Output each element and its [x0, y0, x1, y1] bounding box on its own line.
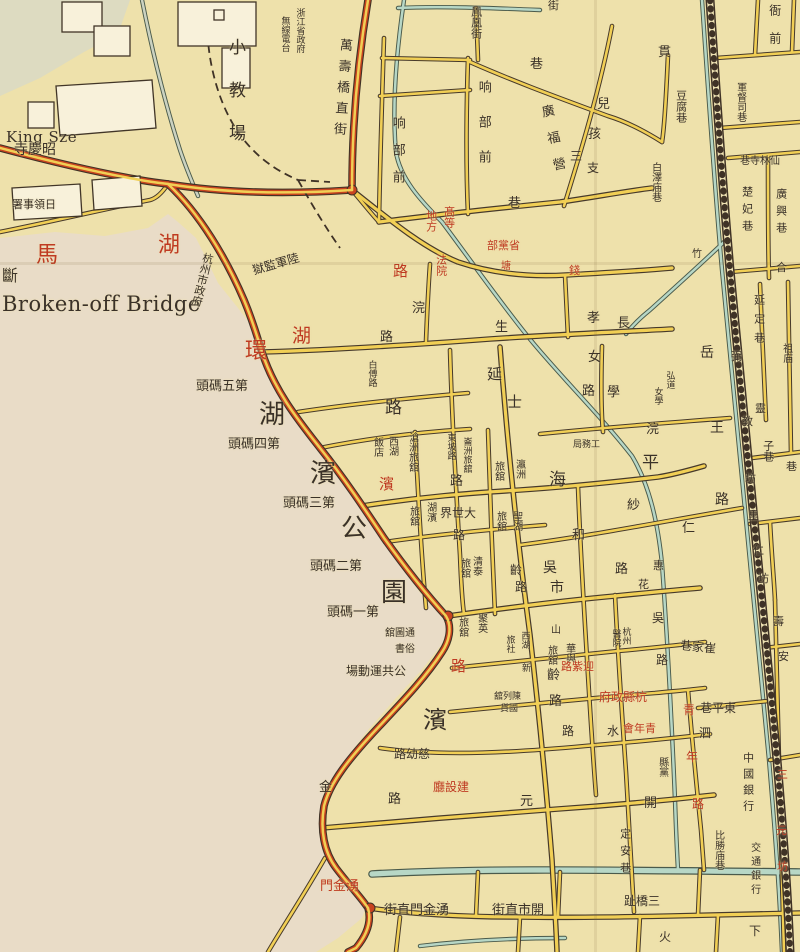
map-label: 王 [710, 421, 724, 436]
map-label: 下 [749, 925, 761, 938]
map-label: 湖 [259, 402, 285, 430]
map-label: 街直市開 [492, 904, 544, 918]
map-label: 署事領日 [12, 199, 56, 211]
map-label: 環 [245, 340, 267, 363]
map-label: 响部前 [476, 80, 490, 185]
map-label: 縣黨 [656, 757, 667, 777]
map-label: 坊 [758, 573, 769, 585]
map-label: 髙等 [443, 206, 455, 228]
map-label: 安 [778, 651, 789, 663]
map-label: 巷寺林仙 [740, 157, 780, 168]
map-label: 舘圖通 [385, 629, 415, 640]
map-label: 巷 [530, 58, 543, 72]
map-label: 路幼慈 [394, 748, 430, 761]
map-label: 平 [642, 454, 659, 472]
map-label: 路 [549, 695, 562, 709]
map-label: 市 [550, 581, 564, 596]
map-label: 趾橋三 [624, 895, 660, 908]
map-label: 坊 [745, 473, 756, 485]
map-label: 濱 [423, 708, 447, 733]
map-label: 金 [319, 781, 332, 795]
map-label: 三 [777, 769, 788, 781]
map-label: 西湖 [519, 631, 529, 649]
map-label: 路 [453, 529, 465, 542]
map-label: 士 [507, 395, 522, 411]
map-label: 舘列陳 [494, 693, 521, 703]
map-label: 頭碼四第 [228, 438, 280, 452]
map-label: 海 [549, 471, 566, 489]
map-label: 錢 [569, 265, 580, 277]
map-label: 路 [450, 475, 463, 489]
map-label: 齡 [510, 564, 522, 577]
map-label: 惠 [653, 560, 664, 572]
map-label: 兒 [597, 98, 610, 112]
map-label: 濱 [379, 477, 394, 493]
map-label: 旅舘 [456, 617, 467, 637]
map-label: 延定巷 [753, 294, 765, 351]
map-label: 旅舘 [492, 461, 503, 481]
map-label: 元 [776, 825, 787, 837]
map-label: 會年青 [623, 723, 656, 735]
map-label: 崙洲旅舘 [461, 437, 471, 473]
map-label: 路 [393, 264, 408, 280]
map-label: 法院 [435, 254, 447, 276]
map-label: 路 [692, 798, 704, 811]
fold-line-vertical [594, 0, 597, 952]
map-label: 濱 [310, 461, 336, 489]
map-label: 小教場 [226, 38, 244, 167]
fold-line-horizontal [0, 262, 800, 265]
map-label: 弘道 [664, 371, 674, 389]
map-label: 湖 [292, 326, 311, 346]
map-label: 路 [388, 793, 401, 807]
map-label: 路 [515, 581, 527, 594]
map-label: 滄洲旅舘 [406, 432, 417, 472]
map-label: 山 [551, 626, 561, 637]
map-label: 路 [615, 563, 628, 577]
map-label: 部黨省 [487, 240, 520, 252]
map-label: 聚英 [475, 613, 486, 633]
map-label: 衙前 [768, 4, 781, 60]
map-label: 靈 [755, 403, 766, 415]
map-label: 園 [381, 580, 407, 608]
map-label: 子巷 [762, 440, 774, 462]
map-label: 齡 [547, 669, 560, 683]
map-label: 坊 [777, 861, 788, 873]
map-label: 路紫迎 [561, 661, 594, 673]
map-label: 醫院 [610, 629, 620, 647]
map-label: 東坡路 [445, 433, 455, 460]
map-label: Broken-off Bridge [2, 293, 201, 315]
map-label: 中國銀行 [742, 752, 754, 816]
map-label: 教 [742, 416, 753, 428]
map-label: 浣 [646, 423, 659, 437]
map-label: 定安巷 [619, 828, 631, 879]
map-label: 水 [607, 725, 619, 738]
map-label: 火 [659, 931, 671, 944]
map-label: 泗 [699, 727, 711, 740]
map-label: 弼 [731, 351, 742, 363]
map-label: 旅舘 [458, 558, 469, 578]
map-label: 地方 [425, 210, 437, 232]
map-label: 路 [451, 659, 466, 675]
map-label: 竹 [692, 250, 702, 261]
map-label: 祖庙 [780, 343, 791, 363]
map-label: 場動運共公 [346, 665, 406, 678]
map-label: 壽 [773, 616, 784, 628]
map-label: 府政縣杭 [599, 691, 647, 704]
map-label: 延 [487, 367, 502, 383]
map-label: 女學 [652, 387, 662, 405]
map-label: 青 [683, 704, 695, 717]
map-label: 公 [341, 516, 367, 544]
map-label: 斷 [2, 268, 18, 285]
map-label: 浣 [412, 302, 425, 316]
map-label: 支 [587, 162, 599, 175]
map-label: 岳 [700, 346, 714, 361]
map-label: 鳳凰街 [470, 6, 482, 39]
map-label: 紗 [627, 499, 640, 513]
map-label: 浙江省政府 [294, 8, 304, 53]
map-label: 和 [572, 529, 585, 543]
map-label: 頭碼一第 [327, 606, 379, 620]
map-label: 頭碼二第 [310, 560, 362, 574]
map-label: 白澤庙巷 [649, 162, 660, 202]
map-label: 門金湧 [320, 880, 359, 894]
map-label: 路 [562, 725, 574, 738]
map-label: 巷 [508, 197, 521, 211]
map-label: 豆腐巷 [675, 90, 687, 123]
map-label: 街直門金湧 [384, 904, 449, 918]
map-label: 無線電台 [279, 16, 289, 52]
map-label: 聖湖 [510, 511, 521, 531]
map-label: 開 [644, 797, 657, 811]
map-label: 生 [495, 321, 508, 335]
map-label: 界世大 [440, 507, 476, 520]
map-label: 旅舘 [494, 511, 505, 531]
map-label: 响部前 [390, 116, 404, 197]
map-label: 軍督司巷 [734, 82, 745, 122]
map-label: 頭碼三第 [283, 497, 335, 511]
map-label: 吳 [652, 612, 664, 625]
map-label: 廳設建 [433, 781, 469, 794]
map-label: 湖濱 [424, 502, 435, 522]
map-label: 路 [715, 493, 729, 508]
map-label: 旅舘 [407, 506, 418, 526]
map-label: 巷平東 [700, 702, 736, 715]
map-label: 學 [607, 386, 620, 400]
map-label: 仁 [682, 522, 695, 536]
map-label: 清泰 [470, 556, 481, 576]
map-label: 比勝庙巷 [712, 830, 723, 870]
map-label: 路 [385, 399, 402, 417]
map-label: 貨國 [500, 705, 518, 715]
map-label: 長 [617, 317, 630, 331]
map-label: 花 [638, 579, 649, 591]
map-label: 寺慶昭 [14, 143, 56, 158]
map-label: 里 [748, 510, 759, 522]
map-label: 三 [570, 150, 582, 163]
map-label: 書俗 [395, 645, 415, 656]
map-label: 頭碼五第 [196, 380, 248, 394]
map-label: 楚妃巷 [741, 186, 753, 237]
map-label: 貫 [658, 46, 671, 60]
map-label: 吳 [543, 561, 557, 576]
map-label: 新 [522, 665, 531, 675]
map-label: 湖 [158, 234, 180, 257]
map-label: 瀛洲 [513, 459, 524, 479]
map-label: 飯店 [371, 437, 382, 457]
map-label: 廣興巷 [775, 188, 787, 239]
map-label: 路 [380, 331, 393, 345]
map-label: 交通銀行 [748, 842, 759, 898]
map-label: 白傅路 [366, 360, 376, 387]
map-label: 年 [686, 751, 698, 764]
map-image: King Sze寺慶昭署事領日斷Broken-off Bridge馬湖杭州市政府… [0, 0, 800, 952]
map-label: 路 [656, 654, 668, 667]
map-label: 巷 [786, 461, 797, 473]
map-label: 仁 [753, 545, 764, 557]
map-label: 旅舘 [545, 645, 556, 665]
map-label: 旅社 [504, 635, 514, 653]
map-label: 杭州 [620, 627, 630, 645]
map-label: 西湖 [386, 436, 397, 456]
map-label: 元 [520, 795, 533, 809]
map-label: 街 [548, 0, 559, 12]
